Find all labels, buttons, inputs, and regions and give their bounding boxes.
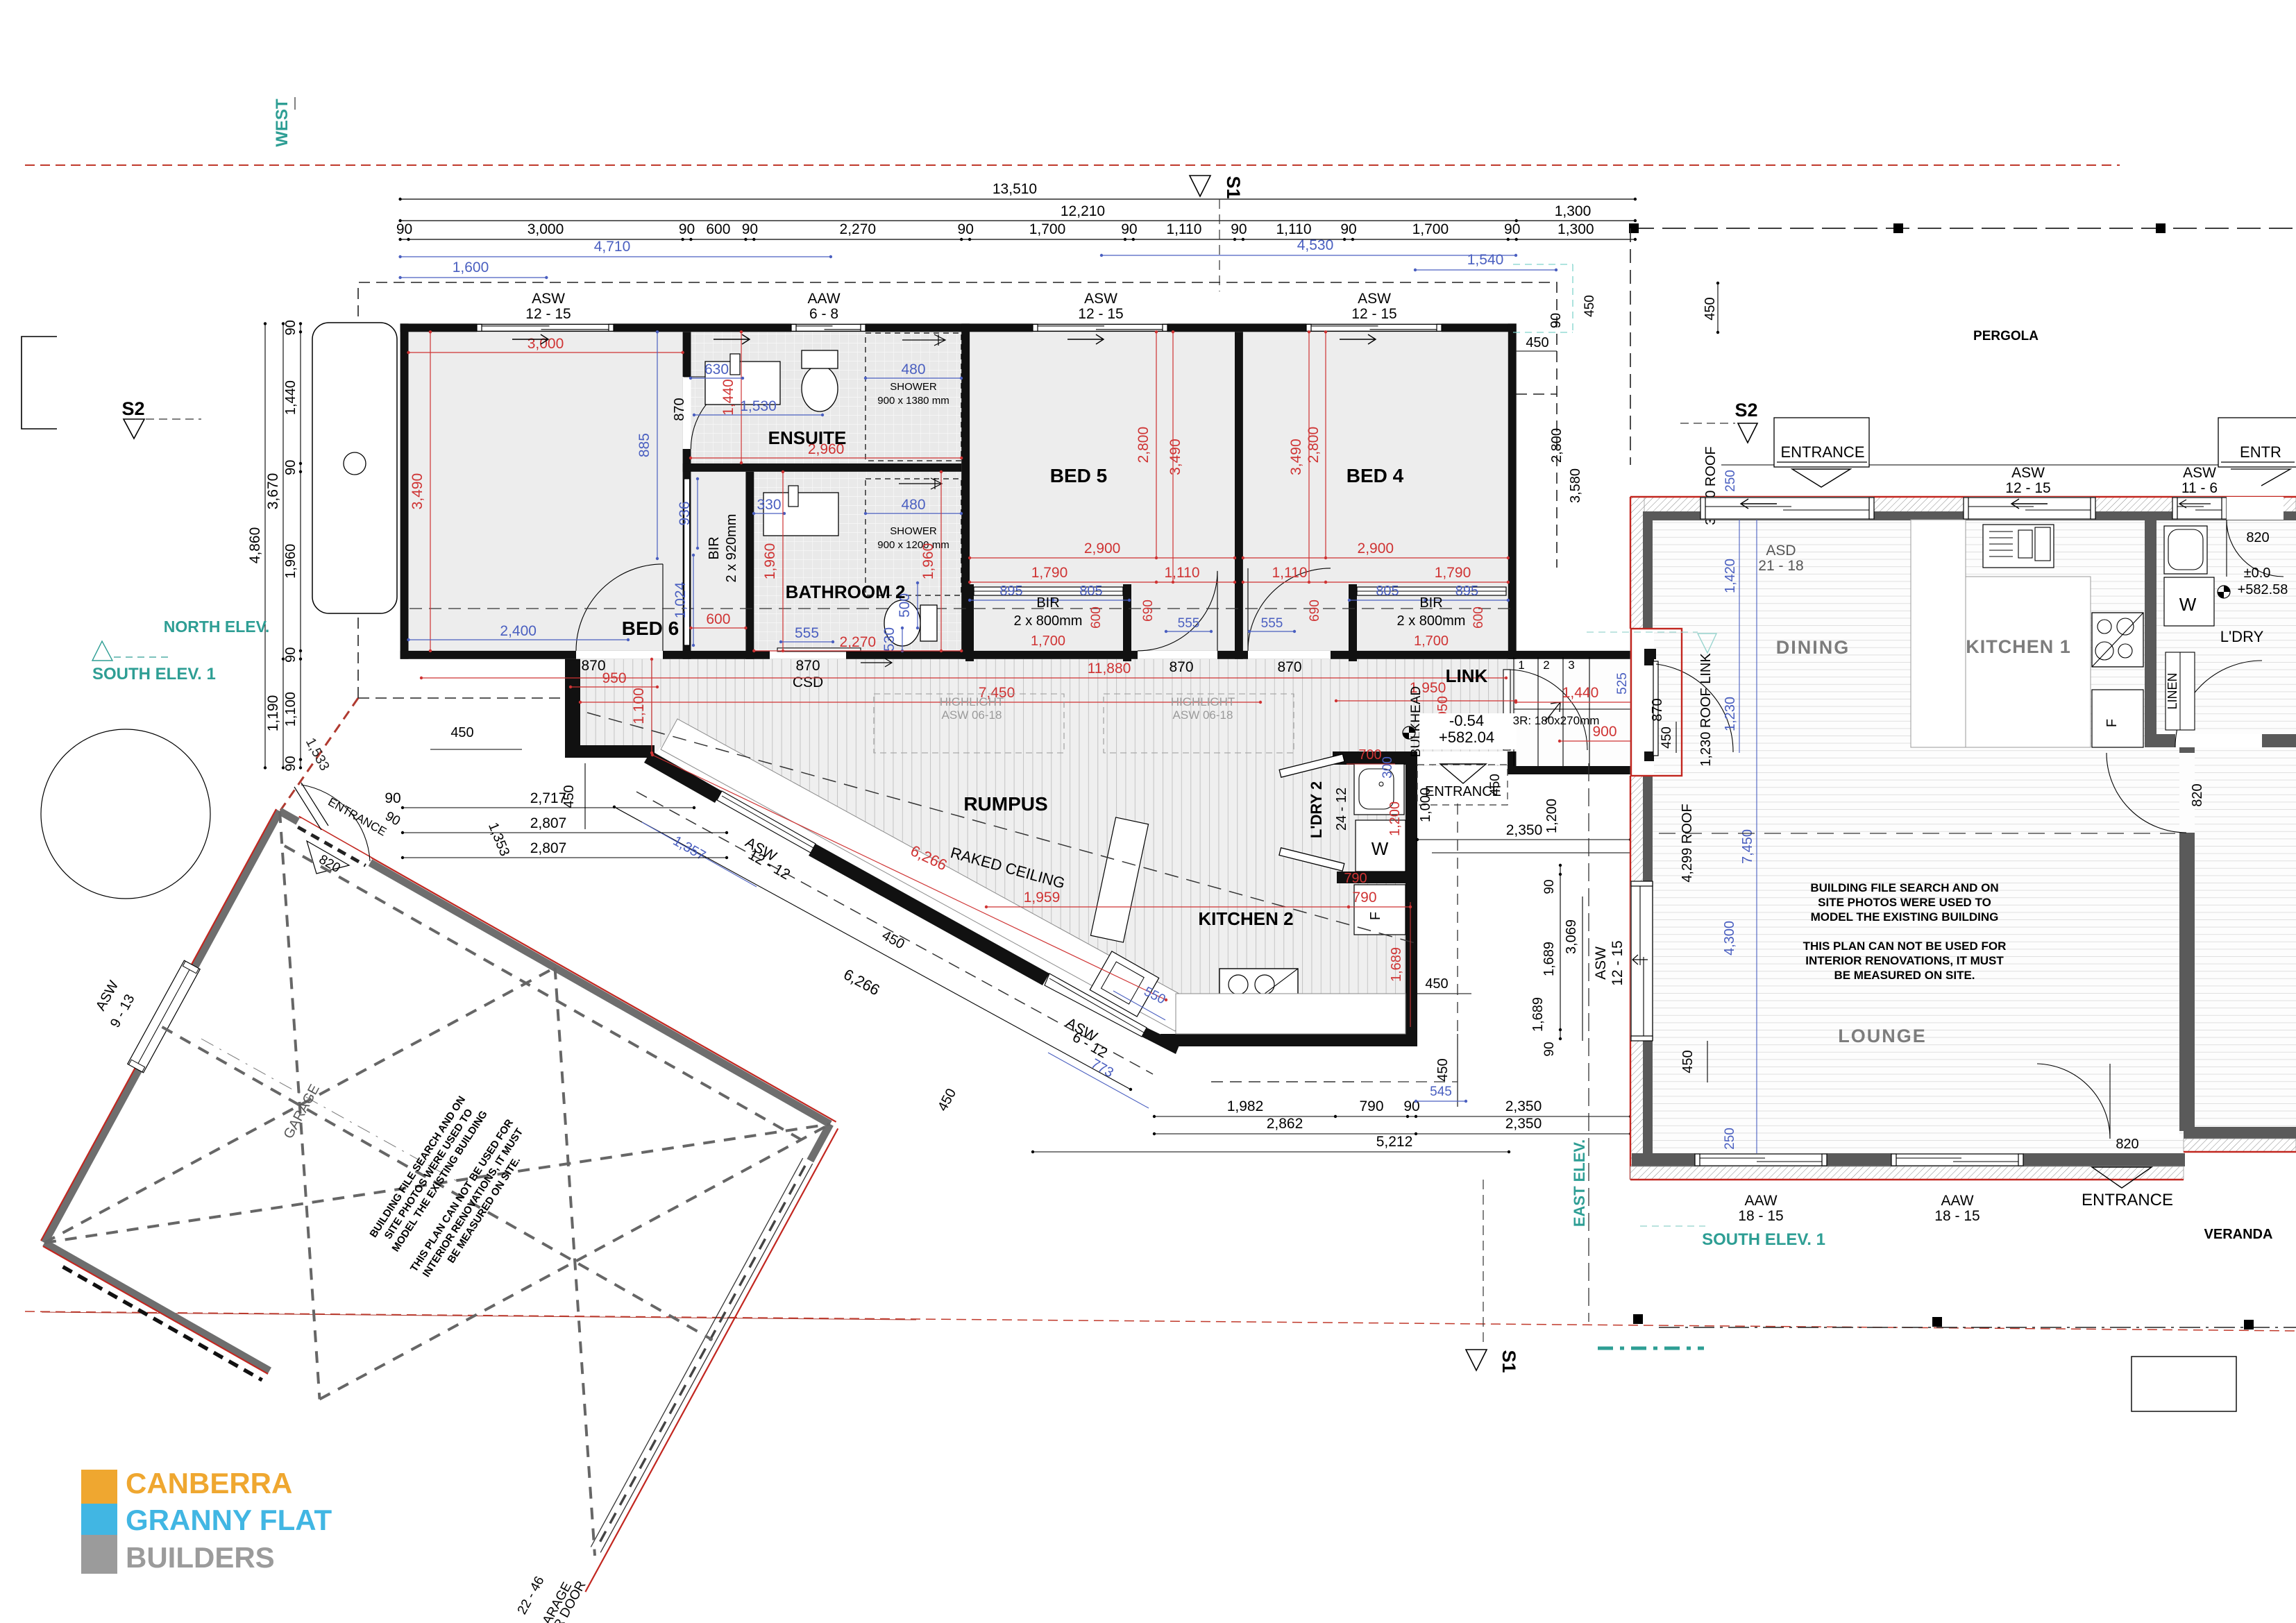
svg-text:555: 555 <box>1261 616 1283 631</box>
svg-text:12 - 15: 12 - 15 <box>1078 306 1123 322</box>
svg-text:1,110: 1,110 <box>1166 221 1201 237</box>
svg-text:805: 805 <box>1079 584 1102 599</box>
svg-text:90: 90 <box>283 647 298 663</box>
svg-text:600: 600 <box>706 221 730 237</box>
svg-text:2,270: 2,270 <box>840 221 877 237</box>
svg-text:W: W <box>1371 838 1389 859</box>
svg-text:450: 450 <box>1660 726 1674 749</box>
svg-text:2,800: 2,800 <box>1306 427 1322 464</box>
svg-text:S2: S2 <box>1734 400 1757 420</box>
svg-text:1: 1 <box>1518 658 1524 672</box>
svg-text:1,960: 1,960 <box>762 543 778 580</box>
svg-text:BE MEASURED ON SITE.: BE MEASURED ON SITE. <box>1834 969 1975 982</box>
svg-text:600: 600 <box>1471 606 1486 629</box>
svg-text:790: 790 <box>1344 871 1367 886</box>
svg-text:900 x 1200 mm: 900 x 1200 mm <box>877 539 949 551</box>
svg-text:LINK: LINK <box>1446 665 1488 686</box>
svg-text:870: 870 <box>1650 698 1665 721</box>
svg-text:870: 870 <box>1169 659 1193 675</box>
svg-text:2,900: 2,900 <box>1358 541 1394 556</box>
svg-text:+582.58: +582.58 <box>2238 582 2288 597</box>
svg-text:1,790: 1,790 <box>1031 565 1068 581</box>
svg-text:2,717: 2,717 <box>530 790 567 806</box>
svg-text:936: 936 <box>677 501 693 525</box>
svg-text:90: 90 <box>958 221 974 237</box>
svg-text:2,350: 2,350 <box>1505 1098 1542 1114</box>
svg-text:900 x 1380 mm: 900 x 1380 mm <box>877 395 949 407</box>
svg-text:4,860: 4,860 <box>247 527 263 564</box>
svg-text:AAW: AAW <box>807 291 840 307</box>
svg-text:ASW 06-18: ASW 06-18 <box>1173 708 1233 722</box>
svg-text:1,540: 1,540 <box>1467 252 1504 268</box>
svg-text:450: 450 <box>1435 1058 1451 1081</box>
svg-text:4,530: 4,530 <box>1297 237 1334 253</box>
svg-text:480: 480 <box>901 497 925 513</box>
svg-text:L'DRY: L'DRY <box>2220 628 2264 645</box>
svg-text:330: 330 <box>757 497 781 513</box>
svg-text:3,490: 3,490 <box>1288 439 1304 475</box>
svg-text:F: F <box>1368 912 1383 920</box>
svg-text:2,400: 2,400 <box>500 623 537 639</box>
svg-text:BED 4: BED 4 <box>1347 465 1404 486</box>
svg-text:1,230 ROOF LINK: 1,230 ROOF LINK <box>1698 653 1714 767</box>
svg-text:2,862: 2,862 <box>1267 1116 1303 1132</box>
svg-text:525: 525 <box>1615 672 1630 695</box>
svg-text:KITCHEN 1: KITCHEN 1 <box>1966 636 2071 657</box>
svg-text:480: 480 <box>901 362 925 377</box>
svg-text:820: 820 <box>2116 1137 2138 1152</box>
svg-text:90: 90 <box>1542 879 1557 894</box>
svg-text:90: 90 <box>283 320 298 335</box>
svg-text:BIR: BIR <box>1419 595 1442 611</box>
svg-text:1,530: 1,530 <box>740 398 777 414</box>
svg-text:THIS PLAN CAN NOT BE USED FOR: THIS PLAN CAN NOT BE USED FOR <box>1803 940 2007 953</box>
svg-text:1,982: 1,982 <box>1227 1098 1264 1114</box>
svg-text:1,100: 1,100 <box>631 688 647 724</box>
svg-text:ASW 06-18: ASW 06-18 <box>942 708 1002 722</box>
svg-text:250: 250 <box>1723 470 1738 492</box>
svg-text:BIR: BIR <box>707 536 722 559</box>
svg-text:1,700: 1,700 <box>1029 221 1066 237</box>
svg-text:21 - 18: 21 - 18 <box>1758 558 1803 574</box>
svg-text:90: 90 <box>1340 221 1356 237</box>
svg-text:NORTH ELEV.: NORTH ELEV. <box>164 618 270 636</box>
svg-text:24 - 12: 24 - 12 <box>1334 788 1349 831</box>
svg-text:1,300: 1,300 <box>1558 221 1594 237</box>
svg-text:HIGHLIGHT: HIGHLIGHT <box>1171 695 1235 708</box>
svg-text:3,069: 3,069 <box>1564 919 1579 954</box>
svg-text:2,900: 2,900 <box>1084 541 1121 556</box>
svg-text:18 - 15: 18 - 15 <box>1738 1208 1783 1224</box>
svg-text:ASW: ASW <box>1593 946 1609 980</box>
svg-text:12 - 15: 12 - 15 <box>1351 306 1396 322</box>
svg-text:ASW: ASW <box>2011 465 2045 481</box>
svg-text:1,200: 1,200 <box>1544 799 1560 833</box>
svg-text:12 - 15: 12 - 15 <box>2005 480 2050 496</box>
svg-text:ASD: ASD <box>1766 543 1796 559</box>
svg-text:S2: S2 <box>121 398 144 419</box>
svg-text:90: 90 <box>1231 221 1247 237</box>
svg-text:450: 450 <box>450 725 473 740</box>
svg-text:1,790: 1,790 <box>1435 565 1471 581</box>
svg-text:12 - 15: 12 - 15 <box>1610 940 1626 985</box>
svg-text:1,110: 1,110 <box>1165 565 1200 581</box>
svg-text:3,490: 3,490 <box>1167 439 1183 475</box>
svg-text:WEST: WEST <box>273 99 292 147</box>
svg-text:450: 450 <box>1680 1050 1696 1073</box>
svg-text:3,000: 3,000 <box>527 221 564 237</box>
svg-text:870: 870 <box>672 398 687 420</box>
svg-text:ENTRANCE: ENTRANCE <box>1780 443 1864 461</box>
svg-text:90: 90 <box>283 756 298 771</box>
svg-text:GRANNY FLAT: GRANNY FLAT <box>126 1504 332 1536</box>
svg-text:12 - 15: 12 - 15 <box>525 306 571 322</box>
svg-text:SOUTH ELEV. 1: SOUTH ELEV. 1 <box>92 665 216 683</box>
svg-text:3,580: 3,580 <box>1568 468 1583 503</box>
svg-text:1,440: 1,440 <box>283 380 298 415</box>
svg-text:950: 950 <box>602 670 626 686</box>
svg-text:820: 820 <box>2190 783 2205 806</box>
svg-text:600: 600 <box>706 611 730 627</box>
svg-text:2: 2 <box>1543 658 1549 672</box>
svg-text:SITE PHOTOS WERE USED TO: SITE PHOTOS WERE USED TO <box>1818 896 1991 909</box>
svg-text:870: 870 <box>795 658 820 674</box>
svg-text:90: 90 <box>283 460 298 475</box>
svg-text:AAW: AAW <box>1941 1193 1973 1209</box>
svg-text:CANBERRA: CANBERRA <box>126 1467 292 1499</box>
svg-text:11 - 6: 11 - 6 <box>2181 480 2218 496</box>
svg-text:VERANDA: VERANDA <box>2204 1227 2273 1242</box>
svg-text:L'DRY 2: L'DRY 2 <box>1308 781 1325 838</box>
svg-text:INTERIOR RENOVATIONS, IT MUST: INTERIOR RENOVATIONS, IT MUST <box>1805 954 2004 967</box>
svg-text:790: 790 <box>1352 890 1376 906</box>
svg-text:BUILDING FILE SEARCH AND ON: BUILDING FILE SEARCH AND ON <box>1810 881 1998 894</box>
svg-text:MODEL THE EXISTING BUILDING: MODEL THE EXISTING BUILDING <box>1811 910 1999 924</box>
svg-text:1,230: 1,230 <box>1723 697 1738 731</box>
svg-text:HIGHLIGHT: HIGHLIGHT <box>940 695 1004 708</box>
svg-text:90: 90 <box>1504 221 1520 237</box>
svg-text:SHOWER: SHOWER <box>890 525 937 537</box>
svg-text:BED 5: BED 5 <box>1050 465 1107 486</box>
svg-text:+582.04: +582.04 <box>1439 729 1494 746</box>
svg-text:ENTR: ENTR <box>2240 443 2281 461</box>
svg-text:PERGOLA: PERGOLA <box>1973 329 2038 343</box>
svg-text:2,350: 2,350 <box>1505 1116 1542 1132</box>
svg-text:90: 90 <box>742 221 758 237</box>
svg-text:ASW: ASW <box>1084 291 1117 307</box>
svg-text:KITCHEN 2: KITCHEN 2 <box>1198 908 1293 929</box>
svg-text:90: 90 <box>1548 313 1564 328</box>
svg-text:ENTRANCE: ENTRANCE <box>2082 1191 2173 1209</box>
svg-text:3,000: 3,000 <box>527 336 564 352</box>
svg-text:-0.54: -0.54 <box>1449 712 1484 729</box>
svg-text:2,350: 2,350 <box>1506 822 1543 838</box>
svg-text:S1: S1 <box>1499 1350 1519 1373</box>
svg-text:2 x 800mm: 2 x 800mm <box>1397 613 1466 629</box>
svg-text:700: 700 <box>1358 747 1381 763</box>
svg-text:6 - 8: 6 - 8 <box>809 306 838 322</box>
svg-text:90: 90 <box>1542 1042 1557 1056</box>
svg-text:4,300: 4,300 <box>1722 921 1737 955</box>
svg-text:250: 250 <box>1723 1128 1737 1150</box>
svg-text:450: 450 <box>1425 976 1448 992</box>
svg-text:5,212: 5,212 <box>1376 1134 1413 1150</box>
svg-text:1,689: 1,689 <box>1389 947 1404 982</box>
svg-text:1,110: 1,110 <box>1276 221 1312 237</box>
svg-text:1,200: 1,200 <box>1387 801 1403 836</box>
svg-text:1,100: 1,100 <box>283 692 298 726</box>
svg-text:1,689: 1,689 <box>1542 942 1557 976</box>
svg-text:690: 690 <box>1141 600 1156 622</box>
svg-text:F: F <box>2104 719 2120 727</box>
svg-text:545: 545 <box>1430 1085 1452 1099</box>
svg-text:4,299 ROOF: 4,299 ROOF <box>1680 804 1695 882</box>
svg-text:AAW: AAW <box>1744 1193 1777 1209</box>
svg-text:3,670: 3,670 <box>265 473 281 510</box>
svg-text:895: 895 <box>1455 584 1478 599</box>
svg-text:2 x 800mm: 2 x 800mm <box>1014 613 1083 629</box>
svg-text:90: 90 <box>1121 221 1137 237</box>
svg-text:2,800: 2,800 <box>1549 428 1564 463</box>
svg-text:4,710: 4,710 <box>594 239 631 255</box>
svg-text:RUMPUS: RUMPUS <box>963 793 1047 815</box>
svg-text:SOUTH ELEV. 1: SOUTH ELEV. 1 <box>1702 1230 1825 1249</box>
svg-text:LOUNGE: LOUNGE <box>1838 1026 1927 1046</box>
svg-text:11,880: 11,880 <box>1088 661 1131 677</box>
svg-text:690: 690 <box>1308 600 1322 622</box>
svg-text:450: 450 <box>1526 335 1548 350</box>
svg-text:450: 450 <box>1488 774 1503 796</box>
svg-text:1,700: 1,700 <box>1414 634 1449 649</box>
svg-text:870: 870 <box>1277 659 1301 675</box>
svg-text:ASW: ASW <box>2183 465 2216 481</box>
svg-text:1,024: 1,024 <box>673 581 689 618</box>
svg-text:12,210: 12,210 <box>1061 203 1105 219</box>
svg-text:630: 630 <box>704 362 729 377</box>
svg-text:BATHROOM 2: BATHROOM 2 <box>786 581 906 602</box>
svg-text:820: 820 <box>2246 530 2269 545</box>
svg-text:1,700: 1,700 <box>1412 221 1449 237</box>
svg-text:805: 805 <box>1376 584 1399 599</box>
svg-text:3: 3 <box>1568 658 1574 672</box>
svg-text:1,689: 1,689 <box>1530 997 1546 1032</box>
svg-text:7,450: 7,450 <box>1740 829 1755 864</box>
svg-text:450: 450 <box>1582 295 1597 317</box>
svg-text:1,960: 1,960 <box>920 543 936 580</box>
svg-text:555: 555 <box>795 625 819 641</box>
svg-text:1,300: 1,300 <box>1555 203 1592 219</box>
svg-text:BED 6: BED 6 <box>622 618 679 639</box>
svg-text:BIR: BIR <box>1036 595 1059 611</box>
svg-text:SHOWER: SHOWER <box>890 381 937 393</box>
svg-text:2,807: 2,807 <box>530 815 567 831</box>
svg-text:W: W <box>2179 594 2197 615</box>
svg-text:790: 790 <box>1359 1098 1383 1114</box>
svg-text:ASW: ASW <box>1358 291 1391 307</box>
svg-text:S1: S1 <box>1223 176 1244 198</box>
svg-text:1,960: 1,960 <box>283 544 298 579</box>
svg-text:DINING: DINING <box>1776 637 1850 658</box>
svg-text:895: 895 <box>999 584 1022 599</box>
svg-text:ENSUITE: ENSUITE <box>768 427 847 448</box>
svg-text:1,110: 1,110 <box>1272 565 1308 581</box>
svg-text:18 - 15: 18 - 15 <box>1934 1208 1980 1224</box>
svg-text:90: 90 <box>679 221 695 237</box>
svg-text:1,440: 1,440 <box>1562 685 1599 701</box>
svg-text:600: 600 <box>1089 606 1104 629</box>
svg-text:1,959: 1,959 <box>1024 890 1061 906</box>
svg-text:3,490: 3,490 <box>410 473 425 510</box>
svg-text:LINEN: LINEN <box>2166 672 2179 709</box>
svg-text:2,800: 2,800 <box>1136 427 1151 464</box>
svg-text:CSD: CSD <box>793 674 823 690</box>
svg-text:885: 885 <box>636 433 652 457</box>
svg-text:1,420: 1,420 <box>1723 559 1738 593</box>
svg-text:BUILDERS: BUILDERS <box>126 1541 275 1574</box>
svg-text:90: 90 <box>385 790 400 806</box>
svg-text:13,510: 13,510 <box>993 181 1037 197</box>
svg-text:2,807: 2,807 <box>530 840 567 856</box>
svg-text:1,440: 1,440 <box>720 379 736 416</box>
svg-text:1,700: 1,700 <box>1031 634 1065 649</box>
svg-text:ASW: ASW <box>532 291 565 307</box>
svg-text:90: 90 <box>396 221 412 237</box>
svg-text:1,600: 1,600 <box>453 260 489 275</box>
svg-text:450: 450 <box>1703 297 1718 320</box>
svg-text:1,000: 1,000 <box>1418 788 1433 822</box>
svg-text:2,270: 2,270 <box>840 634 877 650</box>
svg-text:530: 530 <box>881 627 897 652</box>
svg-text:555: 555 <box>1178 616 1200 631</box>
svg-text:2 x 920mm: 2 x 920mm <box>724 514 739 583</box>
svg-text:1,190: 1,190 <box>265 695 281 732</box>
svg-text:EAST ELEV.: EAST ELEV. <box>1571 1139 1588 1227</box>
svg-text:3R: 180x270mm: 3R: 180x270mm <box>1513 714 1600 727</box>
svg-text:±0.0: ±0.0 <box>2244 566 2271 581</box>
svg-text:300: 300 <box>1381 756 1395 779</box>
